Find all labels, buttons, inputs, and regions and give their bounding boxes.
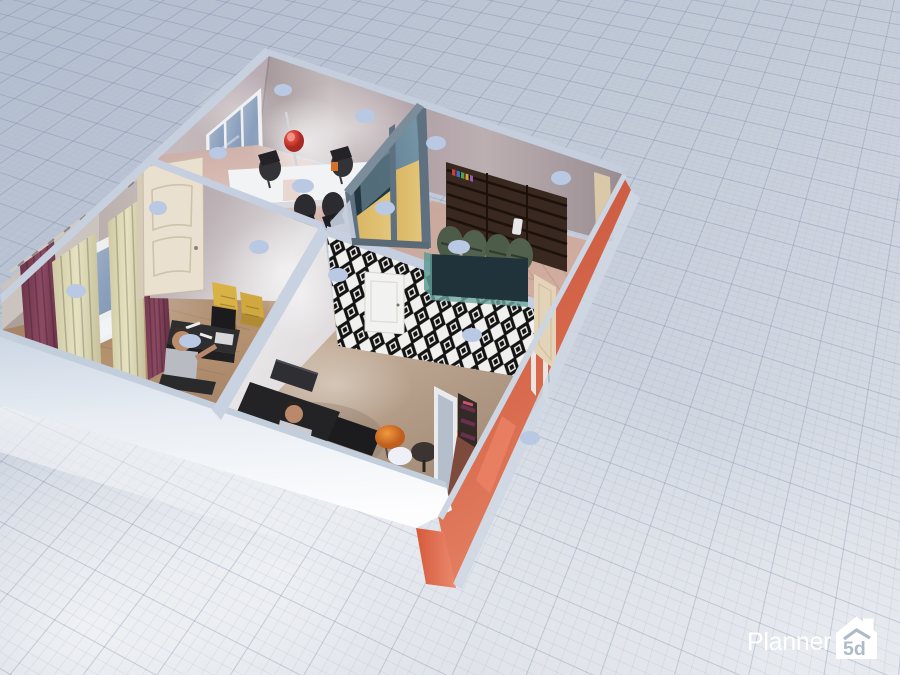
svg-text:Planner: Planner [747,628,831,656]
svg-text:5d: 5d [843,638,866,660]
